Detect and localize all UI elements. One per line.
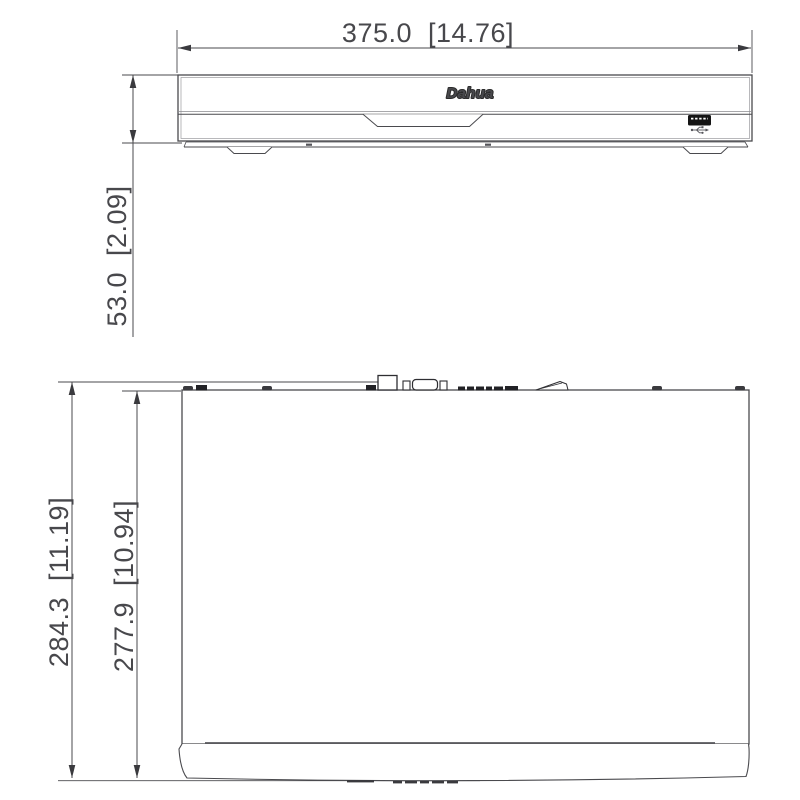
arrowhead-left <box>178 45 191 52</box>
top-view <box>179 376 749 784</box>
front-base-strip <box>184 142 748 147</box>
base-clip-mark <box>485 144 491 146</box>
dimension-depth-chassis-label: 277.9 [10.94] <box>109 500 139 672</box>
rear-connector-block <box>505 386 518 391</box>
arrowhead-down <box>130 130 137 143</box>
rear-connector-block <box>196 385 207 391</box>
usb-port-body <box>688 115 711 126</box>
base-clip-mark <box>306 144 312 146</box>
vga-screw-post <box>403 381 410 390</box>
terminal-pin <box>467 387 474 391</box>
screw-icon <box>183 386 193 391</box>
front-bezel-outline <box>179 744 749 781</box>
dimension-depth-overall-label: 284.3 [11.19] <box>44 497 74 667</box>
dahua-logo: Dahua <box>446 85 493 102</box>
rear-panel-features <box>183 376 745 391</box>
dimension-width-label: 375.0 [14.76] <box>342 18 514 48</box>
arrowhead-right <box>738 45 751 52</box>
screw-icon <box>652 386 662 391</box>
power-socket <box>378 376 397 391</box>
foot-right <box>683 147 728 154</box>
foot-left <box>227 147 272 154</box>
screw-icon <box>735 386 745 391</box>
arrowhead-up <box>69 382 76 395</box>
top-view-body <box>182 390 749 744</box>
terminal-pin <box>458 387 465 391</box>
terminal-pin <box>476 387 484 391</box>
terminal-pin <box>486 387 492 391</box>
front-notch <box>363 114 483 126</box>
terminal-pin <box>494 387 503 391</box>
dimension-height-label: 53.0 [2.09] <box>102 185 132 326</box>
vga-connector <box>413 380 438 391</box>
drawing-page: 375.0 [14.76] 53.0 [2.09] Dahua <box>0 0 800 800</box>
arrowhead-down <box>69 765 76 778</box>
vga-screw-post <box>440 381 447 390</box>
screw-icon <box>262 386 272 391</box>
technical-drawing: 375.0 [14.76] 53.0 [2.09] Dahua <box>0 0 800 800</box>
arrowhead-up <box>134 391 141 404</box>
usb-port-icon <box>688 115 711 126</box>
arrowhead-up <box>130 75 137 88</box>
front-view: Dahua <box>178 75 752 154</box>
arrowhead-down <box>134 765 141 778</box>
rear-connector-block <box>366 385 376 391</box>
